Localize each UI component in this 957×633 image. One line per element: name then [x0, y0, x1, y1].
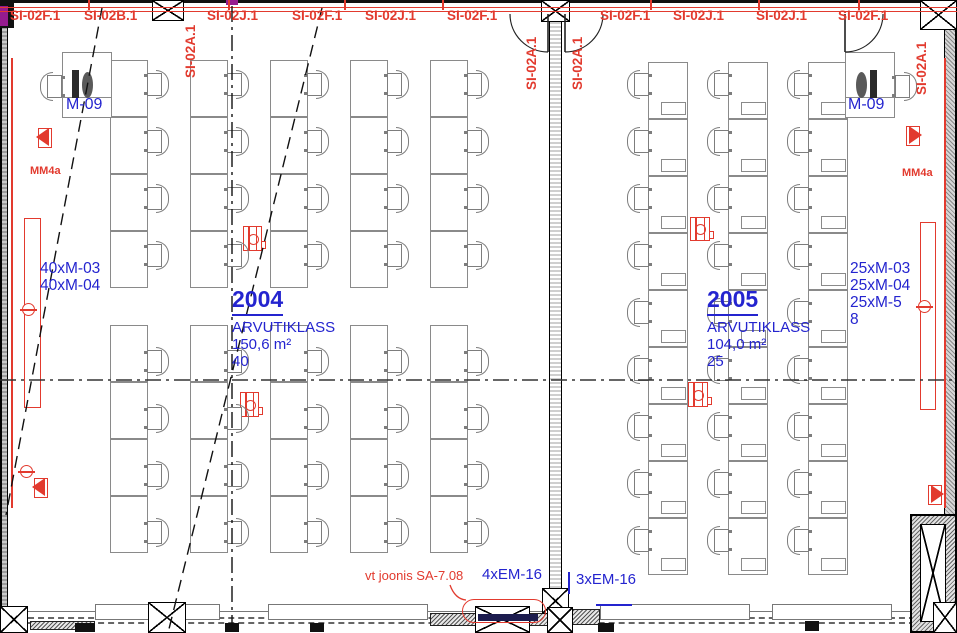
student-desk	[430, 174, 468, 231]
student-desk	[270, 60, 308, 117]
chair-icon	[707, 70, 731, 97]
chair-icon	[385, 461, 409, 488]
chair-icon	[305, 241, 329, 268]
student-desk	[350, 60, 388, 117]
equipment-line: 25xM-03	[850, 260, 910, 277]
fire-alarm-label: SI-02F.1	[10, 8, 60, 23]
desk-drawer	[821, 102, 846, 115]
chair-icon	[627, 469, 651, 496]
em-cable	[596, 604, 632, 606]
monitor-icon	[82, 72, 93, 98]
desk-drawer	[821, 216, 846, 229]
chair-icon	[225, 461, 249, 488]
room-name: ARVUTIKLASS	[707, 319, 810, 336]
em-fixture-bar	[478, 614, 538, 621]
student-desk	[270, 439, 308, 496]
student-desk	[270, 496, 308, 553]
student-desk	[430, 117, 468, 174]
student-desk	[430, 231, 468, 288]
fire-alarm-label: SI-02A.1	[524, 37, 539, 90]
student-desk	[190, 117, 228, 174]
drawing-reference: vt joonis SA-7.08	[365, 568, 463, 583]
student-desk	[190, 174, 228, 231]
chair-icon	[305, 70, 329, 97]
teacher-station-label: M-09	[848, 96, 884, 114]
equipment-labels-right: 25xM-03 25xM-04 25xM-5 8	[850, 260, 910, 328]
student-desk	[110, 496, 148, 553]
fire-alarm-label: SI-02F.1	[447, 8, 497, 23]
room-info-2004: 2004 ARVUTIKLASS 150,6 m² 40	[232, 286, 335, 370]
student-desk	[270, 174, 308, 231]
desk-drawer	[741, 558, 766, 571]
student-desk	[350, 174, 388, 231]
chair-icon	[465, 127, 489, 154]
wall-device-label: MM4a	[30, 165, 61, 177]
desk-drawer	[821, 558, 846, 571]
chair-icon	[465, 241, 489, 268]
desk-drawer	[661, 501, 686, 514]
chair-icon	[627, 70, 651, 97]
chair-icon	[787, 526, 811, 553]
student-desk	[110, 439, 148, 496]
chair-icon	[225, 241, 249, 268]
equipment-line: 8	[850, 311, 910, 328]
chair-icon	[225, 127, 249, 154]
desk-drawer	[821, 501, 846, 514]
desk-drawer	[741, 387, 766, 400]
desk-drawer	[821, 387, 846, 400]
student-desk	[110, 60, 148, 117]
student-desk	[430, 496, 468, 553]
chair-icon	[385, 184, 409, 211]
chair-icon	[145, 347, 169, 374]
desk-drawer	[661, 330, 686, 343]
fire-alarm-label: SI-02F.1	[600, 8, 650, 23]
wall-device-label: MM4a	[902, 167, 933, 179]
student-desk	[350, 496, 388, 553]
student-desk	[350, 231, 388, 288]
chair-icon	[225, 404, 249, 431]
desk-drawer	[661, 273, 686, 286]
monitor-icon	[72, 70, 79, 98]
desk-drawer	[741, 501, 766, 514]
chair-icon	[385, 404, 409, 431]
student-desk	[270, 231, 308, 288]
student-desk	[350, 117, 388, 174]
desk-drawer	[741, 102, 766, 115]
chair-icon	[707, 241, 731, 268]
chair-icon	[627, 355, 651, 382]
room-name: ARVUTIKLASS	[232, 319, 335, 336]
student-desk	[350, 439, 388, 496]
desk-drawer	[661, 102, 686, 115]
chair-icon	[385, 70, 409, 97]
chair-icon	[145, 518, 169, 545]
desk-drawer	[741, 216, 766, 229]
equipment-line: 40xM-04	[40, 277, 100, 294]
desk-drawer	[661, 159, 686, 172]
chair-icon	[627, 184, 651, 211]
chair-icon	[385, 127, 409, 154]
desk-drawer	[661, 444, 686, 457]
chair-icon	[787, 412, 811, 439]
chair-icon	[225, 518, 249, 545]
chair-icon	[707, 469, 731, 496]
fire-alarm-label: SI-02J.1	[365, 8, 416, 23]
chair-icon	[787, 127, 811, 154]
student-desk	[110, 117, 148, 174]
chair-icon	[145, 127, 169, 154]
em-cable	[568, 572, 570, 594]
chair-icon	[305, 461, 329, 488]
student-desk	[190, 496, 228, 553]
student-desk	[110, 231, 148, 288]
equipment-line: 25xM-04	[850, 277, 910, 294]
student-desk	[190, 382, 228, 439]
chair-icon	[465, 347, 489, 374]
monitor-icon	[870, 70, 877, 98]
equipment-labels-left: 40xM-03 40xM-04	[40, 260, 100, 294]
room-area: 150,6 m²	[232, 336, 335, 353]
student-desk	[430, 60, 468, 117]
chair-icon	[225, 184, 249, 211]
chair-icon	[40, 72, 64, 99]
chair-icon	[707, 412, 731, 439]
room-area: 104,0 m²	[707, 336, 810, 353]
em-label-right: 3xEM-16	[576, 571, 636, 588]
student-desk	[190, 439, 228, 496]
fire-alarm-label: SI-02A.1	[914, 42, 929, 95]
chair-icon	[145, 461, 169, 488]
chair-icon	[145, 241, 169, 268]
desk-drawer	[741, 159, 766, 172]
desk-drawer	[741, 444, 766, 457]
student-desk	[350, 325, 388, 382]
chair-icon	[385, 347, 409, 374]
chair-icon	[465, 461, 489, 488]
desk-drawer	[821, 159, 846, 172]
student-desk	[110, 174, 148, 231]
equipment-line: 40xM-03	[40, 260, 100, 277]
chair-icon	[465, 70, 489, 97]
chair-icon	[145, 404, 169, 431]
chair-icon	[627, 526, 651, 553]
fire-alarm-label: SI-02A.1	[570, 37, 585, 90]
monitor-icon	[856, 72, 867, 98]
chair-icon	[305, 184, 329, 211]
room-capacity: 40	[232, 353, 335, 370]
student-desk	[110, 382, 148, 439]
chair-icon	[707, 184, 731, 211]
student-desk	[430, 439, 468, 496]
fire-alarm-label: SI-02A.1	[183, 25, 198, 78]
fire-alarm-label: SI-02J.1	[207, 8, 258, 23]
chair-icon	[707, 127, 731, 154]
chair-icon	[145, 184, 169, 211]
chair-icon	[305, 518, 329, 545]
desk-drawer	[821, 444, 846, 457]
chair-icon	[787, 241, 811, 268]
teacher-station-label: M-09	[66, 96, 102, 114]
chair-icon	[787, 70, 811, 97]
chair-icon	[305, 127, 329, 154]
student-desk	[190, 325, 228, 382]
room-number: 2004	[232, 286, 283, 316]
chair-icon	[707, 526, 731, 553]
student-desk	[270, 382, 308, 439]
student-desk	[270, 117, 308, 174]
chair-icon	[305, 404, 329, 431]
chair-icon	[627, 298, 651, 325]
desk-drawer	[661, 216, 686, 229]
chair-icon	[787, 469, 811, 496]
student-desk	[110, 325, 148, 382]
chair-icon	[465, 404, 489, 431]
room-info-2005: 2005 ARVUTIKLASS 104,0 m² 25	[707, 286, 810, 370]
chair-icon	[465, 184, 489, 211]
fire-alarm-label: SI-02F.1	[838, 8, 888, 23]
fire-alarm-label: SI-02F.1	[292, 8, 342, 23]
chair-icon	[225, 70, 249, 97]
chair-icon	[385, 518, 409, 545]
chair-icon	[787, 184, 811, 211]
chair-icon	[627, 241, 651, 268]
em-label-left: 4xEM-16	[482, 566, 542, 583]
fire-alarm-label: SI-02J.1	[756, 8, 807, 23]
chair-icon	[385, 241, 409, 268]
student-desk	[350, 382, 388, 439]
room-capacity: 25	[707, 353, 810, 370]
fire-alarm-label: SI-02J.1	[673, 8, 724, 23]
student-desk	[190, 231, 228, 288]
chair-icon	[465, 518, 489, 545]
desk-drawer	[661, 558, 686, 571]
desk-drawer	[821, 273, 846, 286]
room-number: 2005	[707, 286, 758, 316]
equipment-line: 25xM-5	[850, 294, 910, 311]
desk-drawer	[821, 330, 846, 343]
desk-drawer	[661, 387, 686, 400]
chair-icon	[145, 70, 169, 97]
chair-icon	[627, 412, 651, 439]
student-desk	[430, 382, 468, 439]
student-desk	[430, 325, 468, 382]
floor-plan: SI-02F.1 SI-02B.1 SI-02A.1 SI-02J.1 SI-0…	[0, 0, 957, 633]
chair-icon	[627, 127, 651, 154]
fire-alarm-label: SI-02B.1	[84, 8, 137, 23]
desk-drawer	[741, 273, 766, 286]
